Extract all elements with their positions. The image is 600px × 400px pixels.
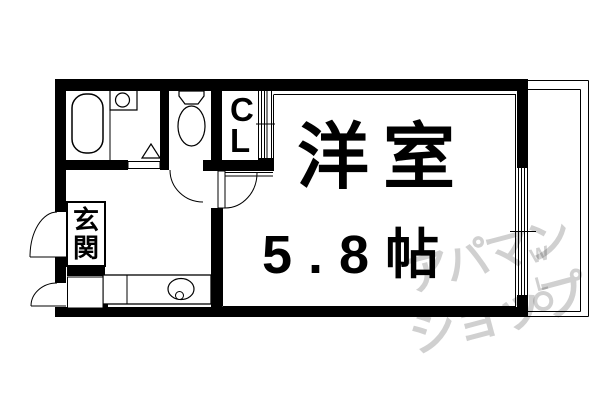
- storage-door-arc: [31, 283, 57, 306]
- wall-kitchen-room: [211, 208, 222, 307]
- toilet-unit: [170, 91, 205, 202]
- closet-label: C L: [230, 95, 254, 156]
- closet-label-char-l: L: [230, 126, 250, 157]
- shoe-closet-outline: [68, 277, 104, 308]
- kitchen-drain-icon: [176, 292, 184, 300]
- kitchen-counter: [103, 275, 211, 304]
- bathroom-unit: [72, 91, 160, 169]
- entrance-label-char-1: 玄: [73, 206, 99, 234]
- closet-sliding-door: [256, 91, 275, 158]
- toilet-bowl-icon: [178, 106, 205, 146]
- bath-sliding-door: [128, 162, 160, 169]
- bath-door-marker-triangle: [142, 144, 160, 158]
- wall-bath-toilet: [160, 91, 169, 170]
- entrance-door-arc: [30, 212, 57, 257]
- toilet-door-arc: [170, 170, 203, 202]
- entrance-label-char-2: 関: [73, 234, 99, 262]
- kitchen-unit: [103, 275, 211, 304]
- bathtub-icon: [72, 94, 103, 153]
- room-door-leaf: [218, 171, 225, 208]
- entrance-label: 玄 関: [67, 202, 105, 266]
- wall-left-upper: [55, 79, 66, 212]
- wall-right-upper: [517, 79, 528, 168]
- washbasin-icon: [116, 93, 130, 107]
- wall-top: [55, 79, 528, 91]
- floorplan-drawing: [0, 0, 600, 400]
- toilet-tank-icon: [179, 91, 204, 104]
- main-room-door: [218, 171, 257, 208]
- floorplan-canvas: 洋室 5.8帖 C L 玄 関 アパマン ショップ W L: [0, 0, 600, 400]
- room-door-arc: [225, 173, 257, 208]
- main-room-name-label: 洋室: [297, 122, 469, 194]
- wall-toilet-closet: [211, 91, 222, 171]
- wall-bath-bottom: [66, 160, 128, 170]
- wall-left-mid: [55, 257, 66, 283]
